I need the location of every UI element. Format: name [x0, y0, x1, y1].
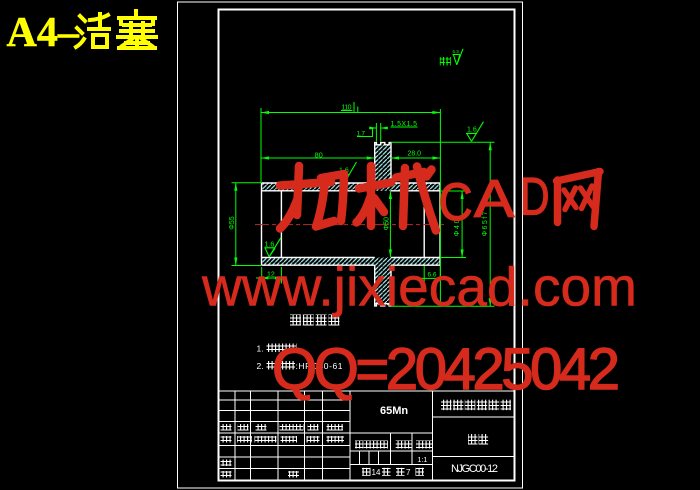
svg-text:65Mn: 65Mn	[380, 405, 408, 417]
svg-text:A4–: A4–	[7, 10, 80, 56]
svg-text:1.6: 1.6	[265, 241, 275, 248]
svg-text:80: 80	[315, 151, 323, 160]
svg-text:1.7: 1.7	[357, 131, 366, 138]
svg-text:1.5X1.5: 1.5X1.5	[391, 121, 418, 128]
svg-text:28.0: 28.0	[408, 151, 422, 158]
svg-text:1:1: 1:1	[418, 457, 428, 464]
svg-text:Φ55: Φ55	[229, 216, 236, 229]
svg-text:A: A	[474, 170, 514, 229]
svg-text:NJGC00-12: NJGC00-12	[451, 463, 498, 475]
svg-text:1.6: 1.6	[467, 126, 477, 133]
svg-text:Φ50: Φ50	[383, 217, 390, 230]
svg-text:110: 110	[342, 105, 352, 112]
svg-text:6.3: 6.3	[453, 49, 460, 54]
svg-text:www.jixiecad.com: www.jixiecad.com	[201, 256, 637, 318]
svg-text:D: D	[520, 167, 549, 226]
svg-text:2.: 2.	[257, 361, 264, 371]
svg-text:7: 7	[406, 468, 411, 477]
svg-text:C: C	[439, 172, 473, 231]
svg-text:14: 14	[372, 468, 381, 477]
svg-text:1.: 1.	[257, 344, 264, 354]
svg-text:QQ=20425042: QQ=20425042	[272, 337, 620, 402]
